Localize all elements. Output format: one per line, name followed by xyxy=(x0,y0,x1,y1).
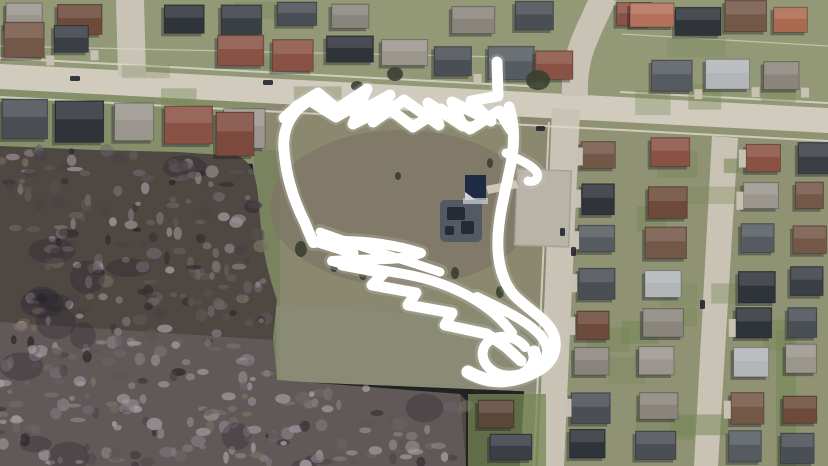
satellite-photo xyxy=(0,0,828,466)
playground xyxy=(440,200,482,242)
pavilion-ground xyxy=(463,198,488,204)
aerial-satellite-view xyxy=(0,0,828,466)
